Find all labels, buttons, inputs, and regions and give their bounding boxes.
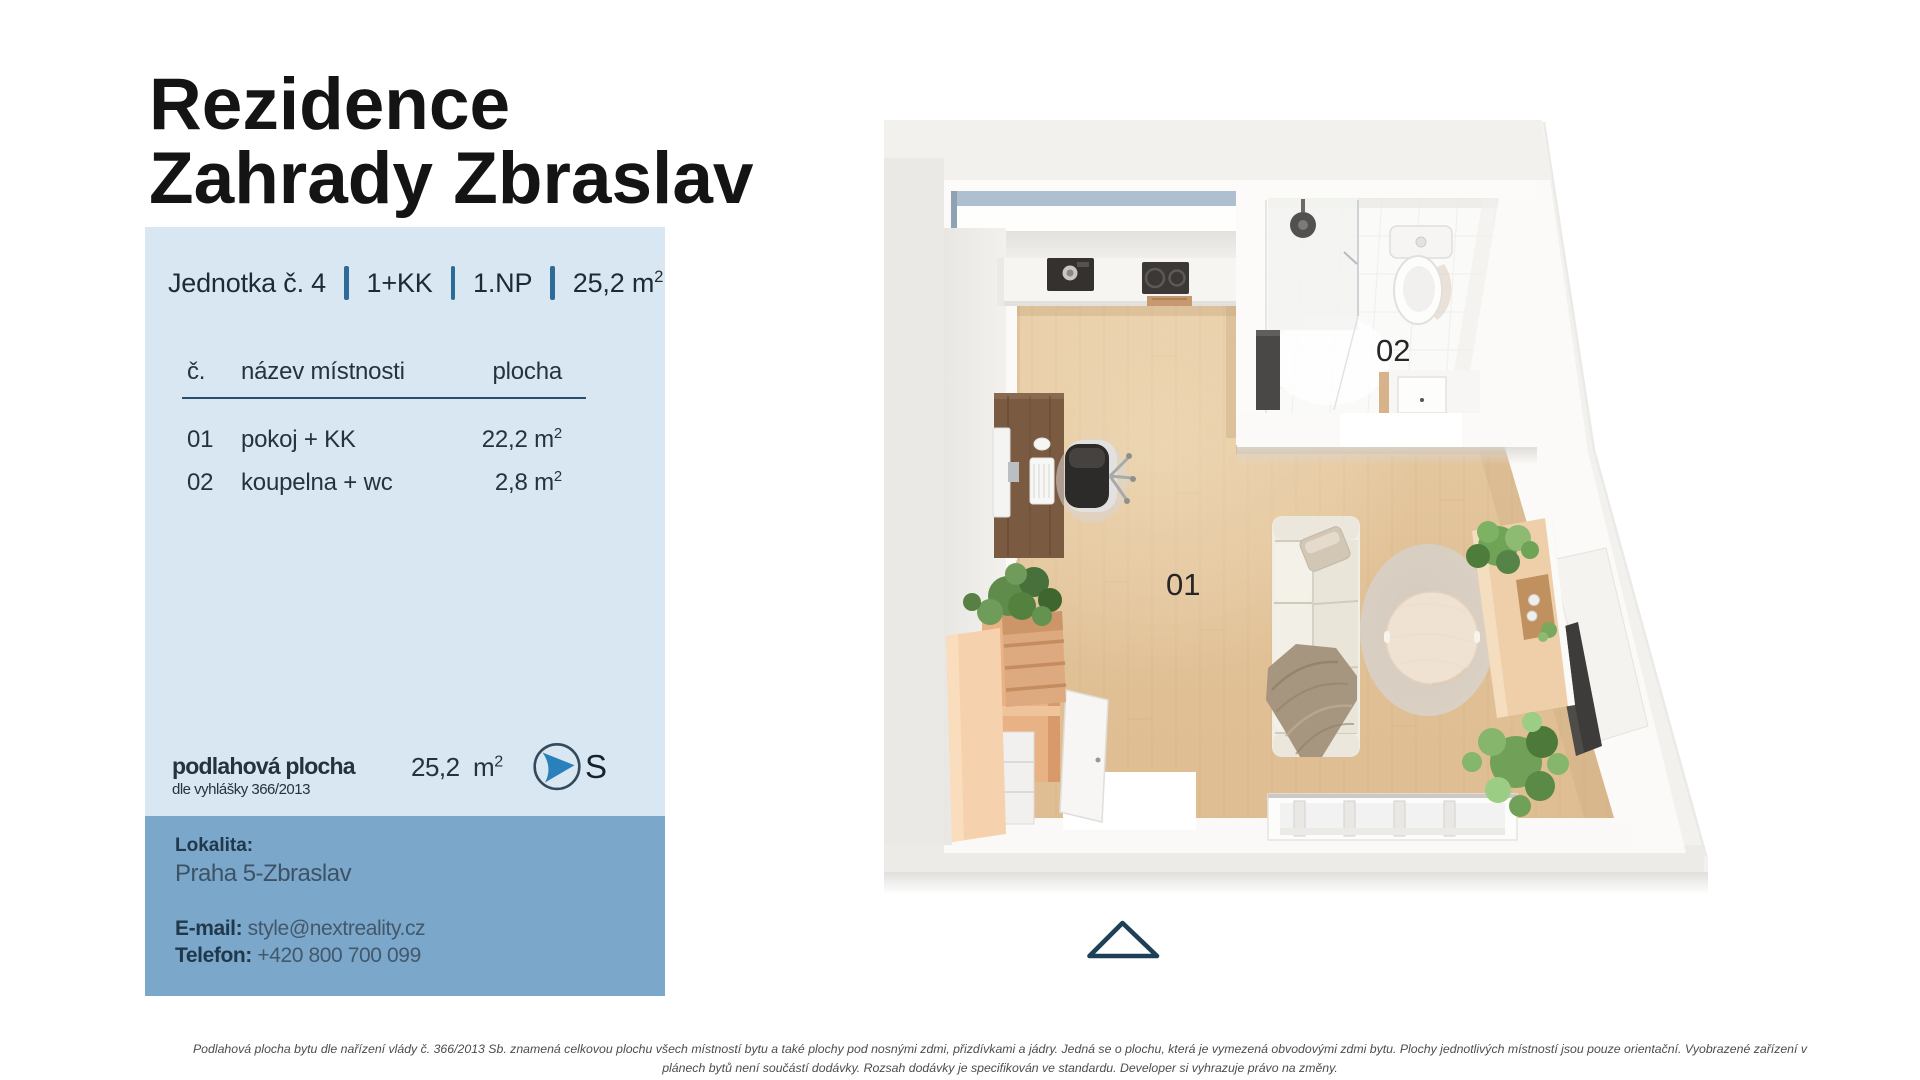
svg-text:02: 02: [1376, 333, 1410, 368]
svg-text:01: 01: [1166, 567, 1200, 602]
